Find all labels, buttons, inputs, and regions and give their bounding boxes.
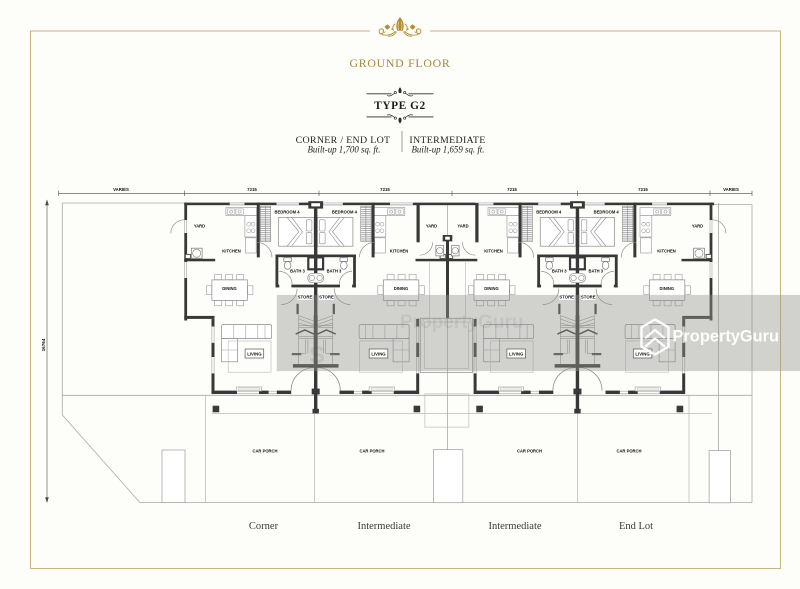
- svg-text:7215: 7215: [638, 187, 648, 192]
- svg-text:YARD: YARD: [194, 223, 205, 228]
- svg-text:KITCHEN: KITCHEN: [484, 249, 502, 254]
- svg-text:BATH 3: BATH 3: [327, 268, 342, 273]
- svg-text:STORE: STORE: [581, 295, 596, 300]
- svg-text:LIVING: LIVING: [509, 351, 524, 356]
- svg-text:BEDROOM 4: BEDROOM 4: [332, 210, 358, 215]
- svg-text:VARIES: VARIES: [113, 187, 129, 192]
- svg-text:PropertyGuru: PropertyGuru: [673, 328, 780, 346]
- svg-text:STORE: STORE: [559, 295, 574, 300]
- svg-text:BATH 3: BATH 3: [290, 268, 305, 273]
- svg-text:Corner: Corner: [249, 521, 279, 532]
- svg-text:7215: 7215: [247, 187, 257, 192]
- svg-text:LIVING: LIVING: [371, 351, 386, 356]
- svg-text:YARD: YARD: [426, 223, 437, 228]
- svg-text:Intermediate: Intermediate: [357, 521, 410, 532]
- svg-text:DINING: DINING: [222, 286, 237, 291]
- svg-text:DINING: DINING: [660, 286, 675, 291]
- svg-text:DINING: DINING: [484, 286, 499, 291]
- svg-text:16764: 16764: [41, 338, 46, 351]
- svg-text:YARD: YARD: [457, 223, 468, 228]
- svg-text:Built-up 1,700 sq. ft.: Built-up 1,700 sq. ft.: [308, 145, 381, 155]
- svg-text:TYPE G2: TYPE G2: [374, 100, 426, 112]
- svg-text:KITCHEN: KITCHEN: [222, 249, 240, 254]
- svg-text:7215: 7215: [380, 187, 390, 192]
- svg-text:S: S: [309, 342, 325, 369]
- svg-text:CAR PORCH: CAR PORCH: [359, 448, 384, 453]
- svg-text:BEDROOM 4: BEDROOM 4: [274, 210, 300, 215]
- svg-text:DINING: DINING: [394, 286, 409, 291]
- svg-text:End Lot: End Lot: [619, 521, 653, 532]
- svg-text:CAR PORCH: CAR PORCH: [517, 448, 542, 453]
- svg-text:STORE: STORE: [298, 295, 313, 300]
- svg-text:BEDROOM 4: BEDROOM 4: [536, 210, 562, 215]
- svg-text:STORE: STORE: [319, 295, 334, 300]
- svg-text:LIVING: LIVING: [635, 351, 650, 356]
- svg-text:Built-up 1,659 sq. ft.: Built-up 1,659 sq. ft.: [412, 145, 485, 155]
- svg-text:PropertyGuru: PropertyGuru: [400, 312, 524, 333]
- svg-text:Intermediate: Intermediate: [488, 521, 541, 532]
- svg-text:KITCHEN: KITCHEN: [390, 249, 408, 254]
- svg-text:CAR PORCH: CAR PORCH: [252, 448, 277, 453]
- svg-text:BATH 3: BATH 3: [552, 268, 567, 273]
- svg-text:CAR PORCH: CAR PORCH: [616, 448, 641, 453]
- svg-text:VARIES: VARIES: [723, 187, 739, 192]
- svg-text:LIVING: LIVING: [247, 351, 262, 356]
- svg-text:BATH 3: BATH 3: [588, 268, 603, 273]
- svg-text:GROUND FLOOR: GROUND FLOOR: [349, 56, 450, 70]
- svg-text:BEDROOM 4: BEDROOM 4: [594, 210, 620, 215]
- svg-text:7215: 7215: [507, 187, 517, 192]
- svg-text:KITCHEN: KITCHEN: [657, 249, 675, 254]
- svg-text:YARD: YARD: [692, 223, 703, 228]
